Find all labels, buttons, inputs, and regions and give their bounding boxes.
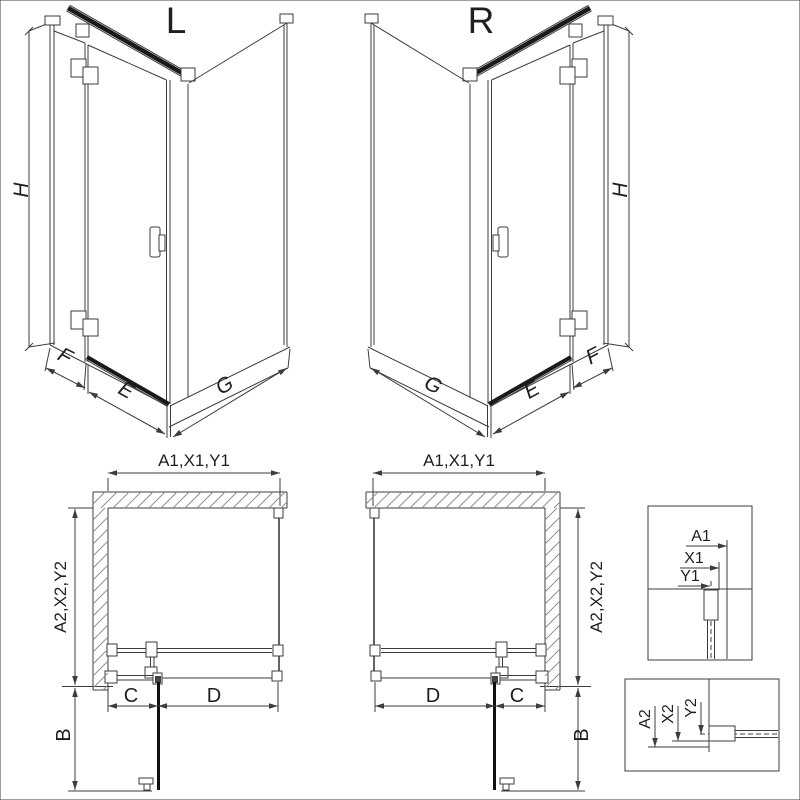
detail-depth-dim-x: X2	[660, 704, 677, 724]
plan-left-dim-fixed-segment: C	[124, 685, 138, 707]
plan-left-dim-door-segment: D	[207, 685, 221, 707]
plan-left-dim-door-open: B	[53, 728, 75, 741]
detail-depth-dim-y: Y2	[683, 698, 700, 718]
plan-left-dim-depth: A2,X2,Y2	[51, 561, 70, 633]
plan-left-dim-width: A1,X1,Y1	[158, 451, 230, 470]
iso-right-dim-height: H	[609, 182, 632, 198]
iso-right-variant-label: R	[468, 0, 495, 41]
shower-enclosure-diagram: L R H F E G H F E G A1,X1,Y1 A2,X2,Y2 B …	[0, 0, 800, 800]
iso-left-variant-label: L	[166, 0, 187, 41]
detail-depth-dim-a: A2	[637, 709, 654, 729]
detail-width-dim-a: A1	[691, 528, 711, 545]
plan-right-dim-door-open: B	[571, 728, 593, 741]
plan-right-dim-door-segment: D	[426, 685, 440, 707]
plan-right-dim-fixed-segment: C	[510, 685, 524, 707]
detail-width-dim-y: Y1	[680, 568, 700, 585]
shower-enclosure-spec-page: L R H F E G H F E G A1,X1,Y1 A2,X2,Y2 B …	[0, 0, 800, 800]
detail-width-dim-x: X1	[684, 550, 704, 567]
iso-left-dim-height: H	[10, 182, 33, 198]
plan-right-dim-width: A1,X1,Y1	[423, 451, 495, 470]
plan-right-dim-depth: A2,X2,Y2	[587, 561, 606, 633]
